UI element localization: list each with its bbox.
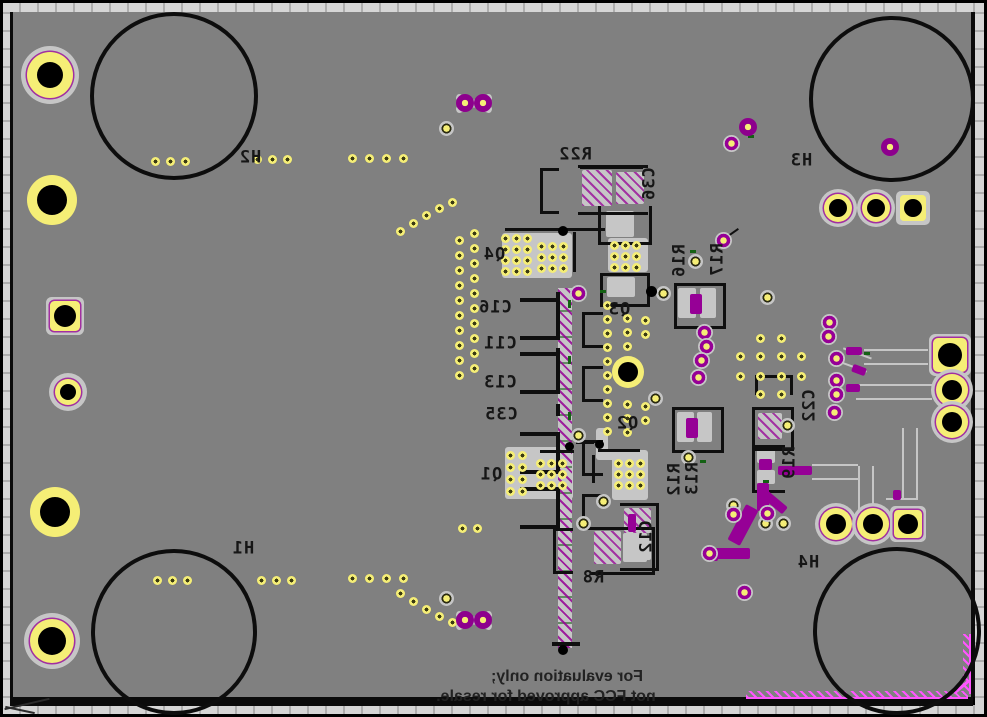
via [512,234,521,243]
via [523,267,532,276]
silkscreen-label-r16: R16 [672,244,689,278]
via [756,372,765,381]
magenta-trace [686,418,698,438]
via [470,319,479,328]
via [636,481,645,490]
via [536,481,545,490]
silkscreen-label-r17: R17 [710,243,727,277]
drill-hole [38,627,66,655]
via [439,591,454,606]
green-segment [690,250,696,253]
via [603,399,612,408]
via [776,516,791,531]
via [474,94,492,112]
via [536,470,545,479]
via [518,487,527,496]
via [470,364,479,373]
via [756,390,765,399]
via [632,252,641,261]
silkscreen-label-c36: C36 [642,167,659,201]
via [777,334,786,343]
via [523,245,532,254]
via [455,356,464,365]
silkscreen-label-c16: C16 [478,300,512,317]
silkscreen-label-c11: C11 [483,336,517,353]
outline-segment [556,516,560,528]
via [548,253,557,262]
via [603,357,612,366]
connector-pad-strip [558,288,572,648]
silkscreen-label-c35: C35 [484,407,518,424]
via [547,459,556,468]
via [168,576,177,585]
courtyard-outline [553,528,573,574]
via [536,459,545,468]
silkscreen-label-r22: R22 [558,147,592,164]
via [603,427,612,436]
magenta-trace [628,514,636,532]
outline-segment [592,455,595,483]
green-segment [568,300,571,308]
via [621,241,630,250]
via [523,256,532,265]
via [183,576,192,585]
silkscreen-label-q3: Q3 [608,302,630,319]
via [501,267,510,276]
copper-trace [864,349,928,365]
via [455,281,464,290]
via [537,264,546,273]
via [506,463,515,472]
drill-hole [867,199,885,217]
silkscreen-label-r19: R19 [782,446,799,480]
via [693,352,710,369]
via [257,576,266,585]
via [456,94,474,112]
courtyard-outline [582,366,603,402]
via [506,475,515,484]
via [736,372,745,381]
via [571,428,586,443]
via [548,242,557,251]
drill-hole [54,305,76,327]
via [614,481,623,490]
silkscreen-notice-line1: For evaluation only; [491,669,643,685]
via [455,311,464,320]
via [777,390,786,399]
outline-segment [556,404,560,416]
via [518,463,527,472]
drill-hole [618,362,638,382]
via [641,416,650,425]
copper-trace [902,428,918,500]
outline-segment [505,228,605,231]
outline-segment [580,166,643,169]
via [641,402,650,411]
courtyard-outline [540,168,559,214]
via [614,470,623,479]
via [474,611,492,629]
via [399,154,408,163]
via [365,154,374,163]
via [723,135,740,152]
via [512,256,521,265]
via [625,481,634,490]
drill-hole [938,343,962,367]
via [632,241,641,250]
via [570,285,587,302]
courtyard-outline [582,312,603,348]
via [455,371,464,380]
via [797,372,806,381]
via [518,451,527,460]
magenta-trace [759,459,772,470]
via [455,266,464,275]
via [455,326,464,335]
via [506,451,515,460]
via [470,229,479,238]
via [537,242,546,251]
magenta-trace [893,490,901,500]
courtyard-outline [520,298,560,340]
via [632,263,641,272]
silkscreen-label-h4: H4 [797,555,819,572]
via [610,252,619,261]
via [641,330,650,339]
via [547,470,556,479]
via [603,413,612,422]
via [439,121,454,136]
via [559,264,568,273]
via [365,574,374,583]
courtyard-outline [598,206,652,245]
pcb-viewer-canvas[interactable]: H2 H1 H3 H4 R22 Q4 C16 C11 C13 C35 Q1 Q3… [0,0,987,717]
via [287,576,296,585]
via [409,219,418,228]
green-segment [600,290,606,293]
green-segment [864,352,870,355]
via [470,259,479,268]
courtyard-outline [520,352,560,394]
via [399,574,408,583]
via [777,352,786,361]
drill-hole [829,199,847,217]
drill-hole [595,440,604,449]
via [523,234,532,243]
via [558,470,567,479]
via [559,242,568,251]
via [382,574,391,583]
via [603,385,612,394]
outline-segment [556,348,560,360]
copper-trace [856,384,932,400]
outline-segment [598,449,640,452]
silkscreen-label-c22: C22 [802,389,819,423]
via [828,350,845,367]
via [780,418,795,433]
via [473,524,482,533]
via [623,400,632,409]
via [396,589,405,598]
silkscreen-notice-line2: not FCC approved for resale. [436,689,656,705]
via [548,264,557,273]
via [828,386,845,403]
via [470,304,479,313]
via [739,118,757,136]
drill-hole [942,380,962,400]
via [623,342,632,351]
green-segment [568,356,571,364]
drill-hole [60,384,76,400]
via [422,211,431,220]
via [576,516,591,531]
copper-artwork-layer [0,0,987,717]
via [455,236,464,245]
drill-hole [942,412,962,432]
via [348,574,357,583]
via [153,576,162,585]
via [648,391,663,406]
copper-trace [812,464,858,480]
via [756,352,765,361]
via [614,459,623,468]
via [881,138,899,156]
via [272,576,281,585]
via [396,227,405,236]
via [636,470,645,479]
via [470,334,479,343]
via [625,470,634,479]
via [610,241,619,250]
drill-hole [898,514,918,534]
via [558,459,567,468]
silkscreen-label-c12: C12 [639,520,656,554]
magenta-trace [690,294,702,314]
via [797,352,806,361]
via [547,481,556,490]
via [409,597,418,606]
via [621,252,630,261]
courtyard-outline [672,407,724,453]
silkscreen-label-r13: R13 [685,462,702,496]
via [470,289,479,298]
via [603,343,612,352]
via [636,459,645,468]
via [759,505,776,522]
via [656,286,671,301]
magenta-trace [846,384,860,392]
via [603,371,612,380]
via [760,290,775,305]
via [506,487,515,496]
via [348,154,357,163]
via [756,334,765,343]
drill-hole [37,185,67,215]
via [448,198,457,207]
via [470,244,479,253]
via [458,524,467,533]
silkscreen-label-h1: H1 [232,541,254,558]
green-segment [568,412,571,420]
via [382,154,391,163]
via [181,157,190,166]
silkscreen-label-q4: Q4 [483,247,505,264]
via [688,254,703,269]
silkscreen-label-c13: C13 [483,375,517,392]
via [470,349,479,358]
drill-hole [826,514,846,534]
via [151,157,160,166]
via [435,612,444,621]
silkscreen-label-r12: R12 [667,463,684,497]
via [512,267,521,276]
via [537,253,546,262]
via [283,155,292,164]
drill-hole [863,514,883,534]
via [456,611,474,629]
via [422,605,431,614]
via [268,155,277,164]
silkscreen-label-r8: R8 [582,570,604,587]
via [470,274,479,283]
drill-hole [558,645,568,655]
silkscreen-label-q1: Q1 [480,467,502,484]
via [501,234,510,243]
drill-hole [37,62,63,88]
via [725,506,742,523]
via [690,369,707,386]
via [641,316,650,325]
via [596,494,611,509]
via [736,352,745,361]
via [610,263,619,272]
via [558,481,567,490]
via [518,475,527,484]
via [621,263,630,272]
silkscreen-label-h3: H3 [790,153,812,170]
via [435,204,444,213]
via [455,296,464,305]
via [736,584,753,601]
via [777,372,786,381]
via [623,328,632,337]
via [820,328,837,345]
via [512,245,521,254]
via [455,251,464,260]
magenta-trace [846,347,862,355]
outline-segment [556,292,560,304]
drill-hole [558,226,568,236]
drill-hole [565,442,574,451]
via [625,459,634,468]
via [166,157,175,166]
silkscreen-label-h2: H2 [239,150,261,167]
outline-segment [573,232,576,272]
green-segment [763,480,769,483]
silkscreen-label-q2: Q2 [616,416,638,433]
via [603,329,612,338]
drill-hole [646,286,657,297]
via [701,545,718,562]
via [559,253,568,262]
drill-hole [40,497,70,527]
drill-hole [904,199,922,217]
via [826,404,843,421]
via [455,341,464,350]
